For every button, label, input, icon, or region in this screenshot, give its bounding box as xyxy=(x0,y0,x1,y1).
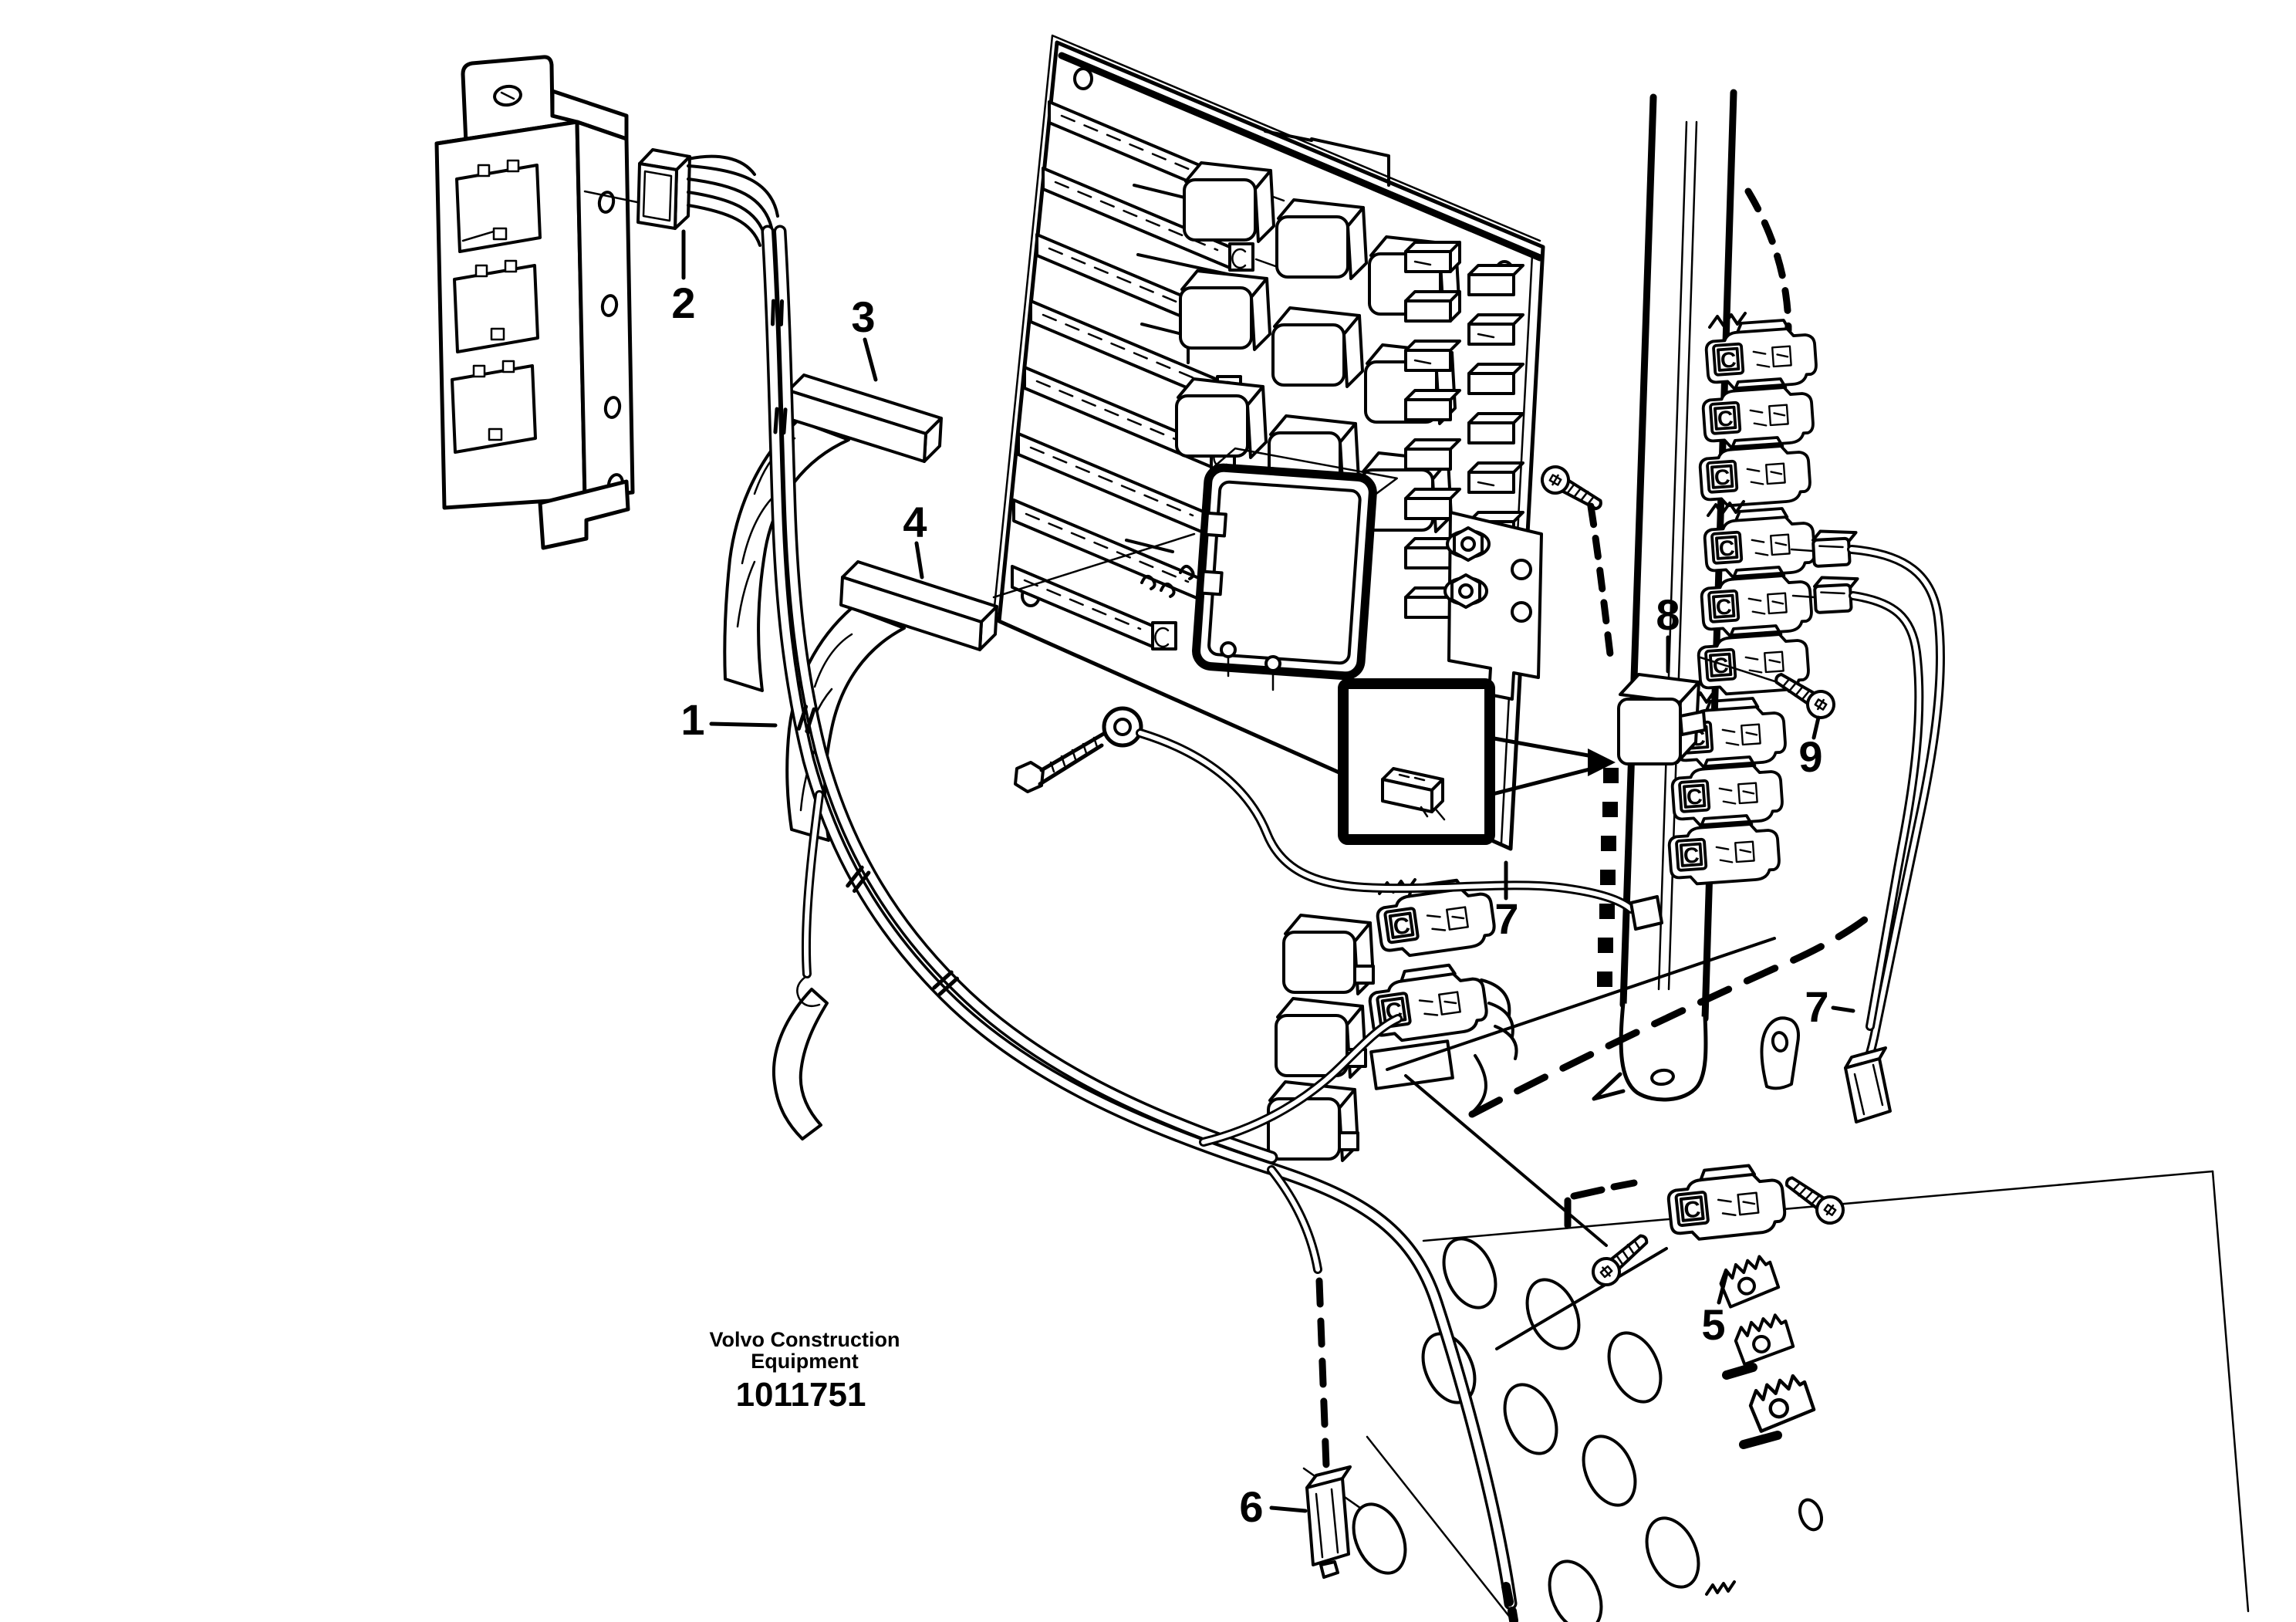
part-number: 1011751 xyxy=(736,1376,866,1414)
harness-strap xyxy=(774,795,827,1139)
callout-2: 2 xyxy=(671,279,695,327)
diagram-canvas: C xyxy=(0,0,2296,1622)
screw-5b xyxy=(1780,1170,1848,1228)
fuse-holder-5 xyxy=(1568,1162,1849,1290)
relay-cubes-bottom xyxy=(1268,915,1373,1161)
mounting-bracket xyxy=(437,57,637,548)
rail-teeth xyxy=(1597,768,1619,987)
brand-text-block: Volvo Construction Equipment 1011751 xyxy=(710,1328,900,1414)
brand-line-2: Equipment xyxy=(751,1350,859,1373)
stack-wires xyxy=(1852,549,1940,1063)
bolt-ring-terminal xyxy=(1015,708,1141,792)
callout-5: 5 xyxy=(1701,1300,1725,1349)
fuse-holder-stack-middle xyxy=(1697,502,1815,696)
callout-1: 1 xyxy=(680,695,704,744)
callout-7a: 7 xyxy=(1494,894,1518,943)
bracket-windows xyxy=(452,161,540,452)
connector-2 xyxy=(638,150,778,245)
bottom-middle-group xyxy=(1268,876,1869,1349)
fuse-holders-bottom xyxy=(1366,876,1497,1044)
callout-6: 6 xyxy=(1239,1482,1263,1531)
connector-6 xyxy=(1307,1467,1350,1577)
connector-7 xyxy=(1845,1048,1890,1122)
cable-clip xyxy=(1761,1018,1798,1088)
parts-diagram-page: C xyxy=(0,0,2296,1622)
callout-3: 3 xyxy=(851,292,875,341)
floor-panel xyxy=(1304,1171,2248,1622)
callout-9: 9 xyxy=(1798,732,1822,781)
callout-8: 8 xyxy=(1656,590,1680,639)
circuit-board xyxy=(994,35,1611,849)
callout-4: 4 xyxy=(903,498,927,546)
detail-inset xyxy=(1343,684,1616,840)
fuse-holder-stack-top xyxy=(1698,313,1817,508)
branch-to-connector-6 xyxy=(1271,1170,1326,1466)
brand-line-1: Volvo Construction xyxy=(710,1328,900,1351)
callout-7b: 7 xyxy=(1805,982,1828,1031)
board-screw xyxy=(1538,462,1611,661)
